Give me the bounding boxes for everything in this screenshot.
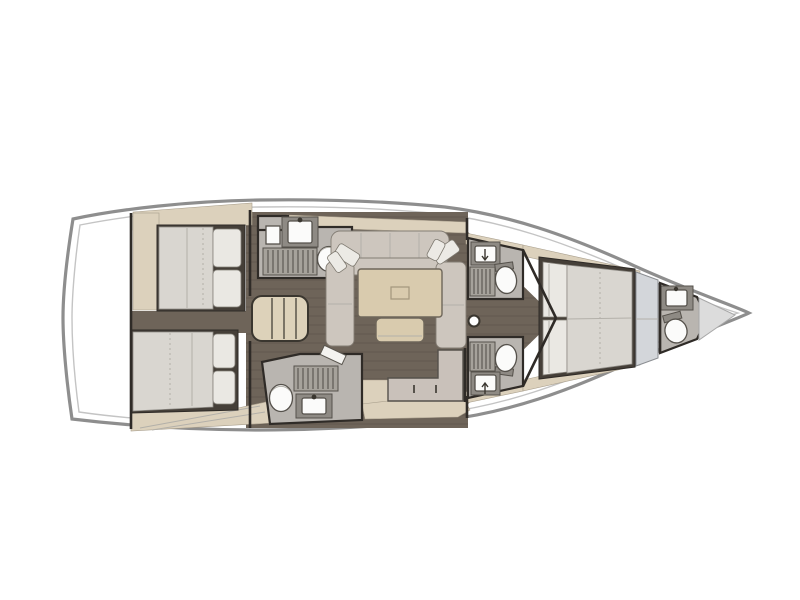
- head-mid-starboard: [468, 337, 523, 398]
- pillow: [543, 262, 567, 317]
- pillow: [213, 270, 241, 307]
- toilet-icon: [270, 385, 293, 412]
- faucet-icon: [312, 395, 317, 400]
- shower-grate-icon: [470, 342, 495, 371]
- sink-icon: [288, 221, 312, 243]
- pillow: [543, 320, 567, 375]
- shower-grate-icon: [470, 267, 495, 296]
- mast-post-icon: [469, 316, 480, 327]
- toiletry-box: [266, 226, 280, 244]
- ottoman: [376, 318, 424, 342]
- faucet-icon: [298, 218, 303, 223]
- pillow: [213, 334, 235, 368]
- berth-mattress: [159, 227, 213, 309]
- dining-table: [358, 269, 442, 317]
- companionway: [252, 296, 308, 341]
- pillow: [213, 371, 235, 404]
- sink-icon: [302, 398, 326, 414]
- forward-cabin: [539, 257, 658, 379]
- pillow: [213, 229, 241, 267]
- faucet-icon: [674, 287, 678, 291]
- galley-plinth: [362, 401, 470, 419]
- shower-grate-icon: [294, 366, 338, 391]
- saloon: [326, 231, 466, 348]
- aft-cabin-port: [157, 225, 245, 311]
- shower-grate-icon: [263, 248, 317, 275]
- berth-mattress: [133, 332, 213, 411]
- deck-plan-figure: [0, 0, 800, 600]
- sink-icon: [666, 290, 687, 306]
- head-mid-port: [468, 238, 523, 299]
- deck-plan-canvas: [0, 0, 800, 600]
- aft-port-side-cabinet: [133, 213, 159, 310]
- aft-cabin-starboard: [131, 330, 238, 413]
- companionway-steps: [252, 296, 308, 341]
